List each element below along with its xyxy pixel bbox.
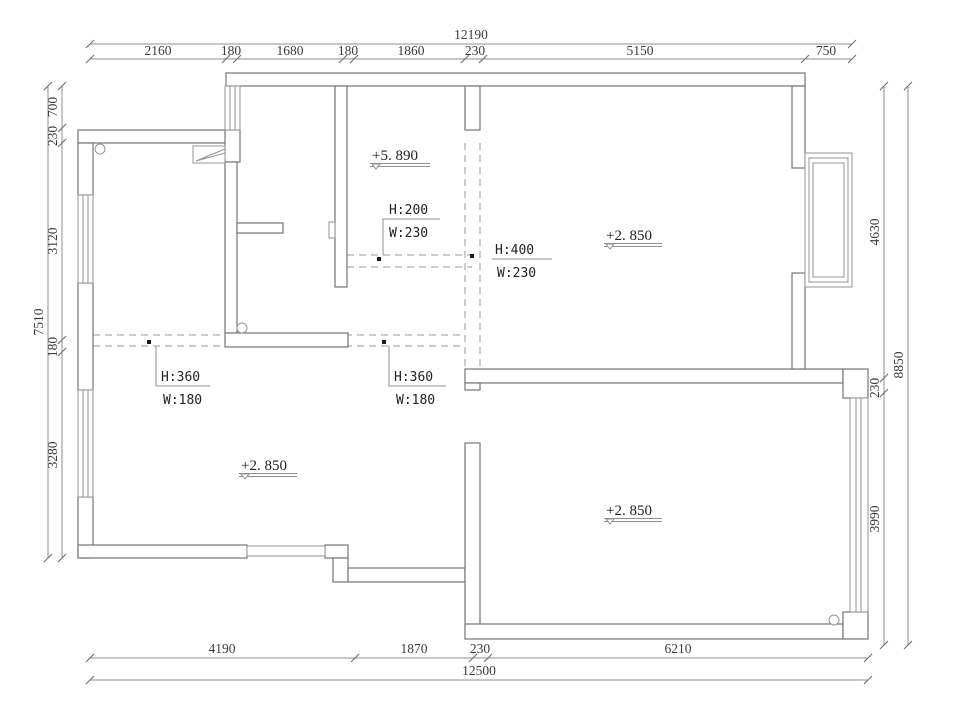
floor-plan-canvas: 12190 2160 180 1680 180 1860 230 5150 75… [0, 0, 963, 724]
dim-right-seg-1: 230 [867, 378, 882, 399]
bottom-step-block [325, 545, 348, 558]
opening-2-height-label: H:400 [495, 243, 534, 258]
dim-right-seg-0: 4630 [867, 218, 882, 245]
bay-window-outer [805, 153, 852, 287]
left-wall-segment-2 [78, 283, 93, 390]
door-hinge-icon-bottom-right [829, 615, 839, 625]
top-wall-stub [465, 86, 480, 130]
right-window [850, 398, 868, 612]
middle-right-wall-notch [465, 383, 480, 390]
dim-left-seg-3: 180 [45, 337, 60, 358]
opening-4-width-label: W:180 [396, 393, 435, 408]
opening-2-width-label: W:230 [497, 266, 536, 281]
right-wall-upper [792, 86, 805, 168]
interior-stub-wall [237, 223, 283, 233]
dim-left-seg-1: 230 [45, 126, 60, 147]
bottom-left-wall [78, 545, 247, 558]
dim-top-seg-3: 180 [338, 43, 359, 58]
level-label-bottom-left-room: +2. 850 [241, 458, 287, 474]
bottom-right-room-left-wall [465, 443, 480, 625]
dim-right-total-label: 8850 [891, 351, 906, 378]
dimension-top: 12190 2160 180 1680 180 1860 230 5150 75… [86, 27, 856, 63]
dimension-right: 4630 230 3990 8850 [867, 82, 912, 649]
dim-left-seg-4: 3280 [45, 441, 60, 468]
dim-top-seg-2: 1680 [277, 43, 304, 58]
dim-bottom-total-label: 12500 [462, 663, 496, 678]
door-hinge-icon-middle [237, 323, 247, 333]
dim-top-total-label: 12190 [454, 27, 488, 42]
level-label-upper-hall: +5. 890 [372, 148, 418, 164]
top-left-window [225, 86, 240, 130]
dim-top-seg-7: 750 [816, 43, 837, 58]
middle-right-wall [465, 369, 843, 383]
opening-1-width-label: W:230 [389, 226, 428, 241]
interior-wall-c [335, 86, 347, 287]
bottom-right-corner-column [843, 612, 868, 639]
interior-column [225, 130, 240, 162]
dim-left-seg-0: 700 [45, 97, 60, 118]
dim-top-seg-4: 1860 [398, 43, 425, 58]
left-room-top-wall [78, 130, 226, 143]
opening-3-point [147, 340, 151, 344]
dim-bottom-seg-1: 1870 [401, 641, 428, 656]
dim-bottom-seg-2: 230 [470, 641, 491, 656]
dimension-bottom: 4190 1870 230 6210 12500 [86, 641, 872, 684]
opening-3-height-label: H:360 [161, 370, 200, 385]
opening-2-point [470, 254, 474, 258]
dim-right-seg-2: 3990 [867, 505, 882, 532]
bottom-right-wall [465, 624, 843, 639]
top-wall [226, 73, 805, 86]
opening-1-point [377, 257, 381, 261]
interior-wall-b [225, 333, 348, 347]
opening-1-height-label: H:200 [389, 203, 428, 218]
dim-left-seg-2: 3120 [45, 227, 60, 254]
dim-left-total-label: 7510 [31, 308, 46, 335]
bottom-step-vertical [333, 558, 348, 582]
level-label-bottom-right-room: +2. 850 [606, 503, 652, 519]
dim-top-seg-6: 5150 [627, 43, 654, 58]
dim-top-seg-1: 180 [221, 43, 242, 58]
right-wall-lower [792, 273, 805, 369]
dim-bottom-seg-3: 6210 [665, 641, 692, 656]
left-wall-segment-1 [78, 143, 93, 195]
opening-3-width-label: W:180 [163, 393, 202, 408]
left-window-2 [78, 390, 93, 497]
bottom-opening [247, 546, 325, 556]
dimension-left: 7510 700 230 3120 180 3280 [31, 82, 66, 562]
opening-4-height-label: H:360 [394, 370, 433, 385]
interior-wall-a [225, 162, 237, 333]
opening-4-point [382, 340, 386, 344]
right-middle-column [843, 369, 868, 398]
door-hinge-icon-top-left [95, 144, 105, 154]
dim-bottom-seg-0: 4190 [209, 641, 236, 656]
level-label-top-right-room: +2. 850 [606, 228, 652, 244]
bottom-step-horizontal [348, 568, 465, 582]
left-window-1 [78, 195, 93, 283]
interior-wall-c-jamb [329, 222, 335, 238]
dim-top-seg-5: 230 [465, 43, 486, 58]
dim-top-seg-0: 2160 [145, 43, 172, 58]
